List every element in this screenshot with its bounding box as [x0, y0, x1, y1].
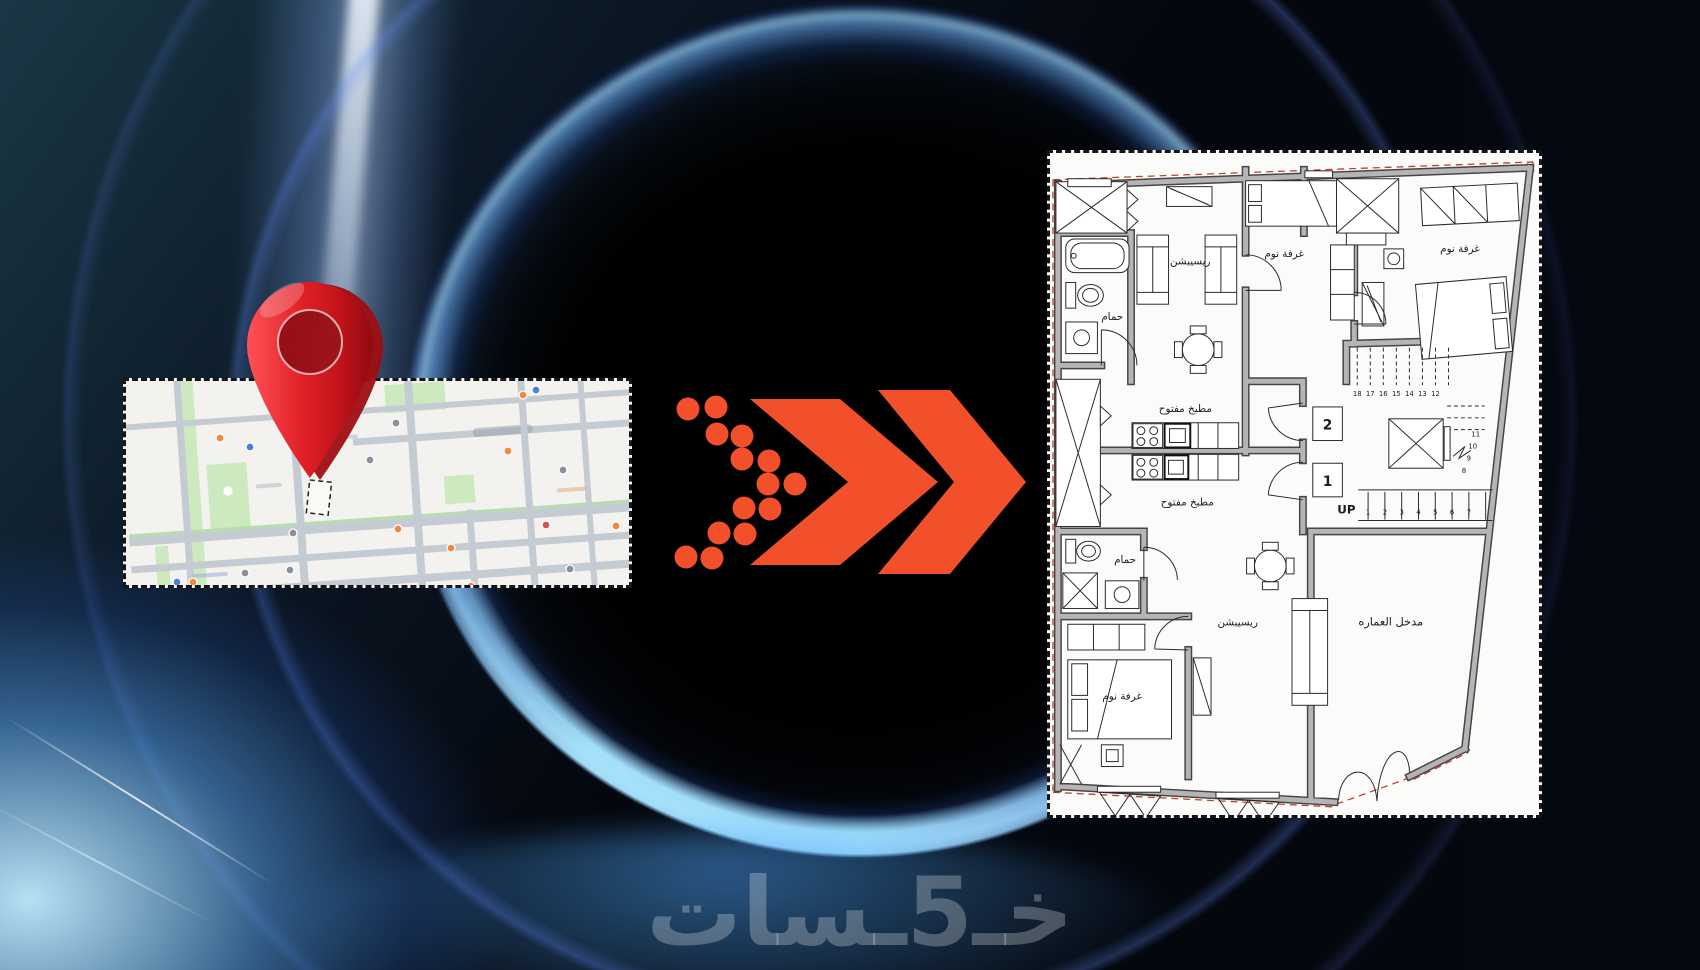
location-pin-icon — [222, 250, 397, 485]
scene: 18171615141312 111098 1234567 UP 2 1 — [0, 0, 1700, 970]
watermark-khamsat: خـ5ـسات — [640, 866, 1080, 970]
arrow-forward-icon — [0, 0, 1700, 970]
